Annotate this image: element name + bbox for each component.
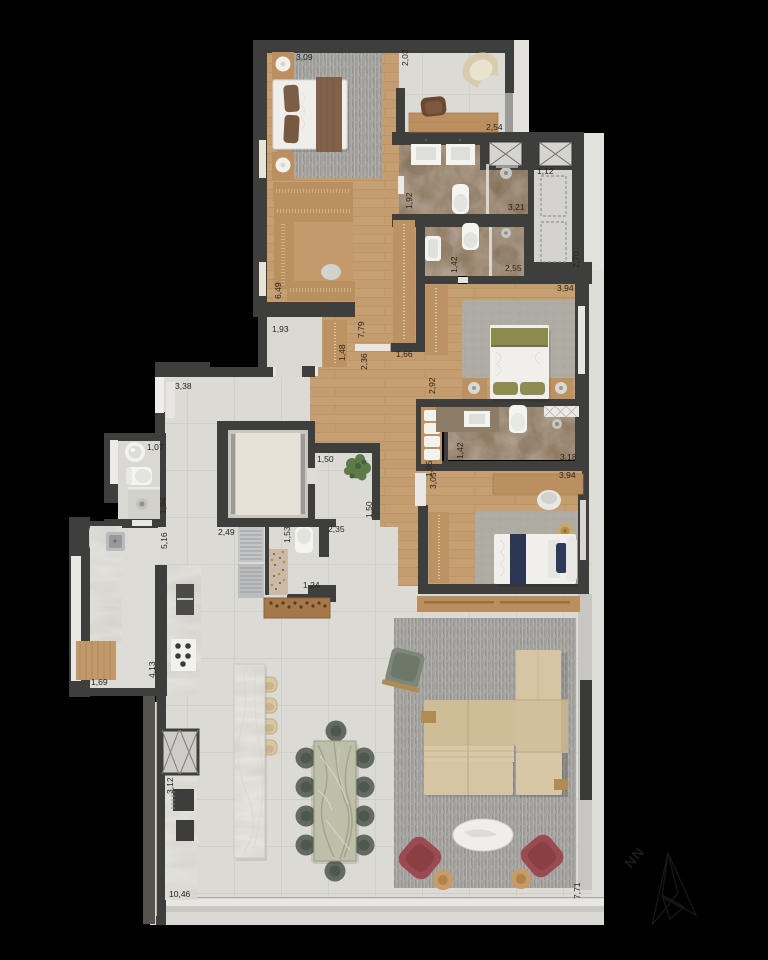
svg-text:1,53: 1,53	[282, 526, 292, 543]
svg-text:1,93: 1,93	[272, 324, 289, 334]
svg-text:2,54: 2,54	[486, 122, 503, 132]
svg-text:5,16: 5,16	[159, 532, 169, 549]
svg-text:2,92: 2,92	[427, 377, 437, 394]
svg-text:3,94: 3,94	[557, 283, 574, 293]
svg-text:2,49: 2,49	[218, 527, 235, 537]
svg-text:6,49: 6,49	[273, 282, 283, 299]
svg-text:1,48: 1,48	[337, 344, 347, 361]
svg-text:1,92: 1,92	[404, 192, 414, 209]
svg-text:1,69: 1,69	[91, 677, 108, 687]
svg-text:3,18: 3,18	[560, 452, 577, 462]
svg-text:10,46: 10,46	[169, 889, 191, 899]
svg-text:2,70: 2,70	[571, 251, 581, 268]
svg-text:3,94: 3,94	[559, 470, 576, 480]
svg-text:1,66: 1,66	[396, 349, 413, 359]
svg-text:3,12: 3,12	[165, 777, 175, 794]
svg-text:1,42: 1,42	[455, 442, 465, 459]
svg-text:3,21: 3,21	[508, 202, 525, 212]
svg-text:1,12: 1,12	[537, 166, 554, 176]
svg-text:3,38: 3,38	[175, 381, 192, 391]
svg-text:3,05: 3,05	[428, 472, 438, 489]
svg-text:1,24: 1,24	[303, 580, 320, 590]
svg-text:7,79: 7,79	[356, 321, 366, 338]
svg-text:2,35: 2,35	[328, 524, 345, 534]
svg-text:2,36: 2,36	[359, 353, 369, 370]
svg-text:7,71: 7,71	[572, 882, 582, 899]
svg-text:3,09: 3,09	[296, 52, 313, 62]
svg-text:1,94: 1,94	[158, 497, 168, 514]
svg-text:1,07: 1,07	[147, 442, 164, 452]
svg-text:4,13: 4,13	[147, 661, 157, 678]
svg-text:2,03: 2,03	[400, 49, 410, 66]
svg-text:1,50: 1,50	[317, 454, 334, 464]
svg-text:1,50: 1,50	[364, 501, 374, 518]
svg-text:1,42: 1,42	[449, 256, 459, 273]
svg-text:2,55: 2,55	[505, 263, 522, 273]
